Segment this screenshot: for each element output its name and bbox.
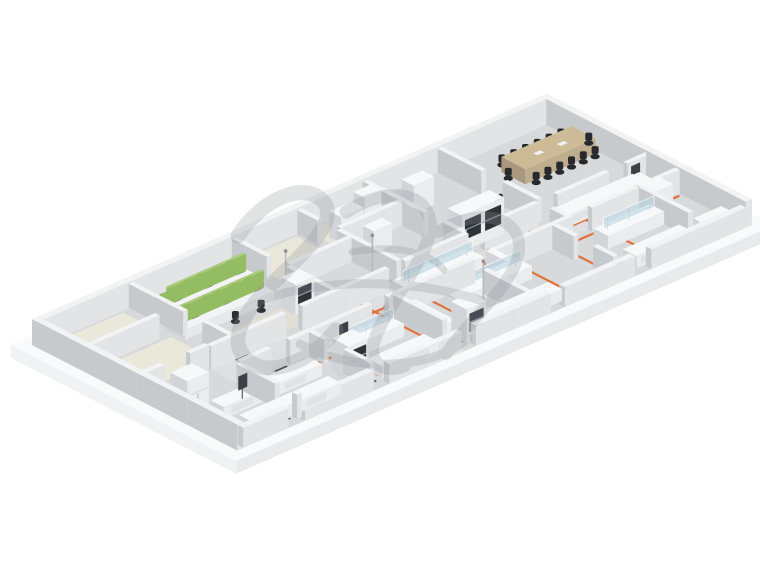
isometric-floorplan-svg: [0, 0, 760, 570]
wall: [292, 390, 302, 419]
floorplan-stage: [0, 0, 760, 570]
